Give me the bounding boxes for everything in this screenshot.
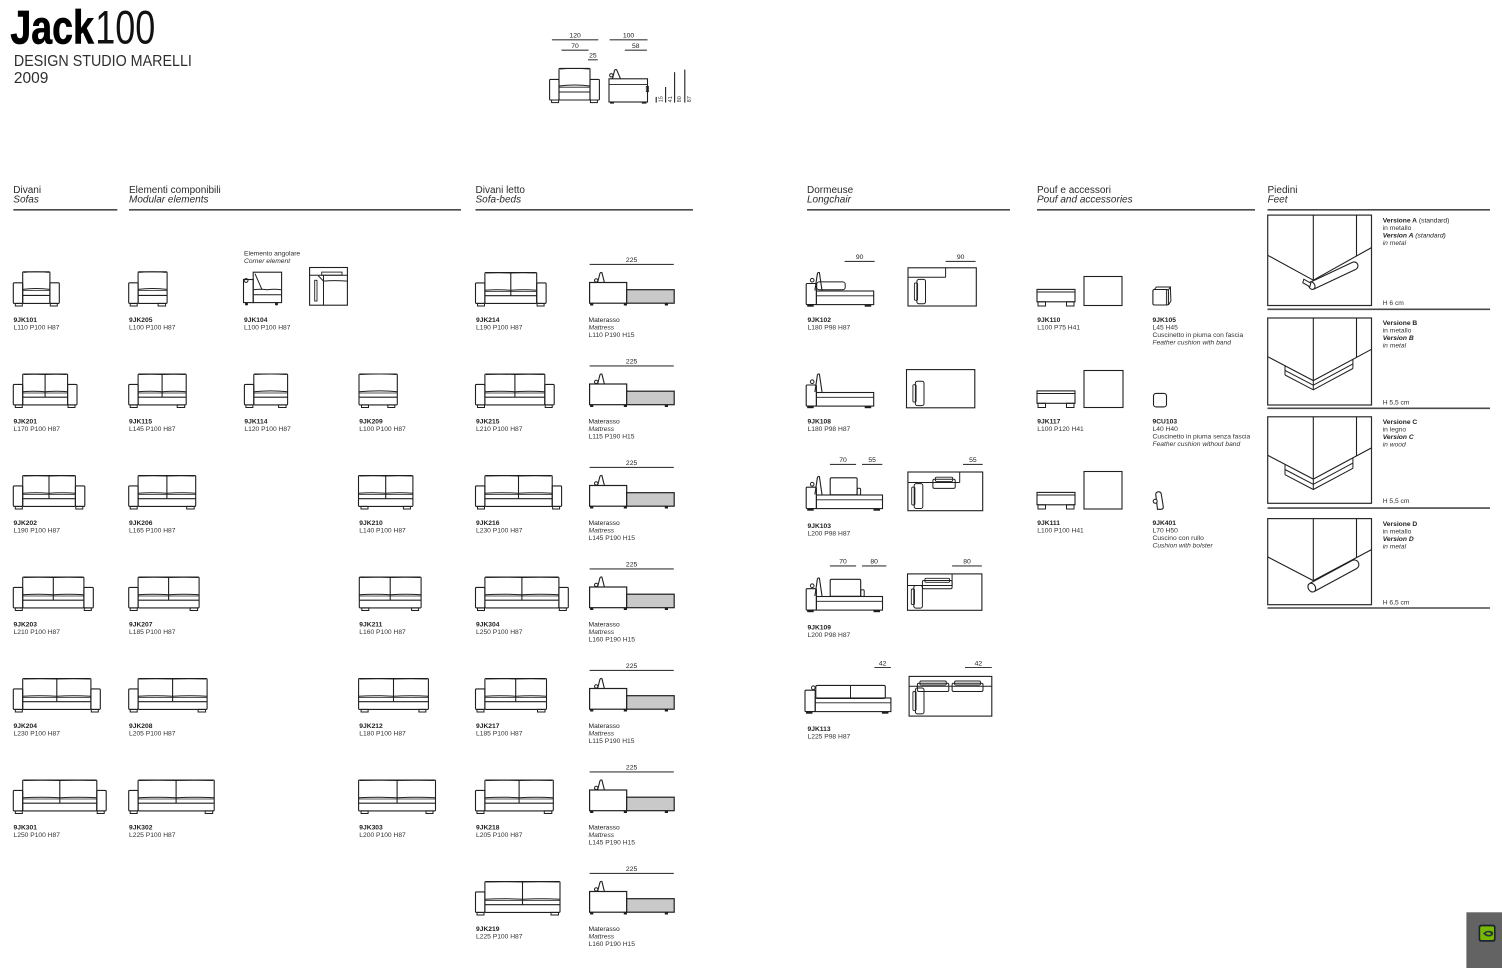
svg-text:Versione D: Versione D — [1383, 521, 1418, 528]
svg-text:9JK210: 9JK210 — [359, 520, 383, 527]
svg-text:Mattress: Mattress — [589, 629, 615, 636]
svg-text:in metal: in metal — [1383, 343, 1407, 350]
svg-text:42: 42 — [879, 660, 887, 667]
svg-text:L225 P100 H87: L225 P100 H87 — [476, 933, 523, 940]
svg-text:9JK103: 9JK103 — [808, 523, 832, 530]
svg-text:15: 15 — [659, 96, 665, 102]
svg-text:Versione B: Versione B — [1383, 320, 1418, 327]
svg-text:80: 80 — [677, 96, 683, 102]
svg-text:L160 P190 H15: L160 P190 H15 — [589, 636, 636, 643]
svg-text:80: 80 — [870, 559, 878, 566]
svg-text:70: 70 — [839, 457, 847, 464]
svg-text:L200 P98 H87: L200 P98 H87 — [808, 531, 851, 538]
svg-text:9JK211: 9JK211 — [359, 621, 382, 628]
svg-text:L205 P100 H87: L205 P100 H87 — [476, 832, 523, 839]
svg-text:Mattress: Mattress — [589, 730, 615, 737]
svg-text:L225 P100 H87: L225 P100 H87 — [129, 832, 176, 839]
svg-text:9CU103: 9CU103 — [1153, 418, 1178, 425]
svg-text:L140 P100 H87: L140 P100 H87 — [359, 527, 406, 534]
svg-text:L190 P100 H87: L190 P100 H87 — [476, 324, 523, 331]
svg-text:Feather cushion without band: Feather cushion without band — [1153, 441, 1241, 448]
svg-text:L180 P98 H87: L180 P98 H87 — [808, 324, 851, 331]
svg-text:L210 P100 H87: L210 P100 H87 — [14, 629, 61, 636]
svg-text:L230 P100 H87: L230 P100 H87 — [14, 730, 61, 737]
svg-text:9JK302: 9JK302 — [129, 824, 153, 831]
svg-text:Cuscino con rullo: Cuscino con rullo — [1153, 535, 1205, 542]
svg-text:H 5,5 cm: H 5,5 cm — [1383, 498, 1410, 505]
svg-text:L200 P98 H87: L200 P98 H87 — [808, 632, 851, 639]
svg-text:9JK214: 9JK214 — [476, 317, 500, 324]
svg-text:Materasso: Materasso — [589, 317, 621, 324]
svg-text:L100 P100 H87: L100 P100 H87 — [359, 426, 406, 433]
svg-text:L100 P75 H41: L100 P75 H41 — [1037, 324, 1080, 331]
svg-text:225: 225 — [626, 663, 638, 670]
svg-text:Mattress: Mattress — [589, 527, 615, 534]
svg-text:Mattress: Mattress — [589, 324, 615, 331]
svg-text:L225 P98 H87: L225 P98 H87 — [808, 734, 851, 741]
svg-text:L170 P100 H87: L170 P100 H87 — [14, 426, 61, 433]
svg-text:90: 90 — [957, 254, 965, 261]
svg-text:Cuscinetto in piuma con fascia: Cuscinetto in piuma con fascia — [1153, 332, 1244, 339]
svg-text:L180 P100 H87: L180 P100 H87 — [359, 730, 406, 737]
svg-text:L250 P100 H87: L250 P100 H87 — [476, 629, 523, 636]
svg-text:225: 225 — [626, 562, 638, 569]
svg-text:9JK114: 9JK114 — [244, 418, 267, 425]
svg-text:55: 55 — [868, 457, 876, 464]
svg-text:in metallo: in metallo — [1383, 328, 1412, 335]
svg-text:25: 25 — [589, 53, 597, 60]
svg-text:H 6,5 cm: H 6,5 cm — [1383, 599, 1410, 606]
svg-text:L100 P100 H41: L100 P100 H41 — [1037, 527, 1084, 534]
svg-text:L70 H50: L70 H50 — [1153, 527, 1179, 534]
svg-text:L100 P120 H41: L100 P120 H41 — [1037, 426, 1084, 433]
svg-text:9JK205: 9JK205 — [129, 317, 153, 324]
svg-text:H 5,5 cm: H 5,5 cm — [1383, 400, 1410, 407]
svg-text:H 6 cm: H 6 cm — [1383, 300, 1405, 307]
svg-text:Feet: Feet — [1268, 195, 1289, 206]
svg-text:L110 P190 H15: L110 P190 H15 — [589, 332, 635, 339]
svg-text:9JK115: 9JK115 — [129, 418, 152, 425]
svg-text:L180 P98 H87: L180 P98 H87 — [808, 426, 851, 433]
svg-text:9JK101: 9JK101 — [14, 317, 38, 324]
svg-text:9JK117: 9JK117 — [1037, 418, 1060, 425]
svg-text:9JK215: 9JK215 — [476, 418, 500, 425]
svg-text:Elemento angolare: Elemento angolare — [244, 250, 300, 257]
svg-text:L145 P190 H15: L145 P190 H15 — [589, 839, 636, 846]
svg-text:225: 225 — [626, 765, 638, 772]
svg-text:2009: 2009 — [14, 70, 48, 87]
svg-text:Mattress: Mattress — [589, 832, 615, 839]
svg-text:9JK212: 9JK212 — [359, 723, 383, 730]
svg-text:9JK203: 9JK203 — [14, 621, 38, 628]
svg-text:90: 90 — [856, 254, 864, 261]
svg-text:Jack: Jack — [10, 0, 94, 53]
svg-text:Materasso: Materasso — [589, 926, 621, 933]
svg-text:L120 P100 H87: L120 P100 H87 — [244, 426, 291, 433]
svg-text:225: 225 — [626, 460, 638, 467]
svg-text:9JK201: 9JK201 — [14, 418, 38, 425]
svg-text:9JK207: 9JK207 — [129, 621, 153, 628]
svg-text:9JK217: 9JK217 — [476, 723, 500, 730]
svg-text:L200 P100 H87: L200 P100 H87 — [359, 832, 406, 839]
svg-text:9JK109: 9JK109 — [808, 625, 832, 632]
svg-text:55: 55 — [969, 457, 977, 464]
svg-text:Modular elements: Modular elements — [129, 195, 208, 206]
svg-text:Materasso: Materasso — [589, 723, 621, 730]
svg-text:9JK219: 9JK219 — [476, 926, 500, 933]
svg-text:9JK301: 9JK301 — [14, 824, 38, 831]
svg-text:in metal: in metal — [1383, 543, 1407, 550]
svg-text:9JK111: 9JK111 — [1037, 520, 1060, 527]
svg-text:in metallo: in metallo — [1383, 225, 1412, 232]
svg-text:225: 225 — [626, 866, 638, 873]
svg-text:9JK104: 9JK104 — [244, 317, 268, 324]
svg-text:in metal: in metal — [1383, 240, 1407, 247]
svg-text:80: 80 — [963, 559, 971, 566]
svg-text:L110 P100 H87: L110 P100 H87 — [14, 324, 60, 331]
svg-text:Version B: Version B — [1383, 335, 1414, 342]
svg-text:L165 P100 H87: L165 P100 H87 — [129, 527, 176, 534]
svg-text:42: 42 — [975, 660, 983, 667]
svg-text:9JK110: 9JK110 — [1037, 317, 1060, 324]
svg-text:87: 87 — [687, 96, 693, 102]
svg-text:L205 P100 H87: L205 P100 H87 — [129, 730, 176, 737]
svg-text:L145 P190 H15: L145 P190 H15 — [589, 535, 636, 542]
svg-text:Feather cushion with band: Feather cushion with band — [1153, 339, 1232, 346]
svg-text:Sofa-beds: Sofa-beds — [476, 195, 522, 206]
svg-text:Version C: Version C — [1383, 434, 1414, 441]
svg-text:70: 70 — [839, 559, 847, 566]
svg-text:L115 P190 H15: L115 P190 H15 — [589, 433, 635, 440]
svg-text:L185 P100 H87: L185 P100 H87 — [476, 730, 523, 737]
svg-text:225: 225 — [626, 257, 638, 264]
svg-text:L40 H40: L40 H40 — [1153, 426, 1179, 433]
svg-text:L100 P100 H87: L100 P100 H87 — [244, 324, 291, 331]
svg-text:Mattress: Mattress — [589, 426, 615, 433]
svg-text:9JK202: 9JK202 — [14, 520, 38, 527]
svg-text:Versione C: Versione C — [1383, 419, 1418, 426]
svg-text:Longchair: Longchair — [807, 195, 852, 206]
svg-text:9JK216: 9JK216 — [476, 520, 500, 527]
svg-text:70: 70 — [571, 43, 579, 50]
svg-text:L185 P100 H87: L185 P100 H87 — [129, 629, 176, 636]
svg-text:9JK218: 9JK218 — [476, 824, 500, 831]
svg-text:DESIGN STUDIO MARELLI: DESIGN STUDIO MARELLI — [14, 53, 192, 70]
svg-text:9JK206: 9JK206 — [129, 520, 153, 527]
svg-text:Materasso: Materasso — [589, 520, 621, 527]
svg-text:41: 41 — [668, 96, 674, 102]
svg-text:L190 P100 H87: L190 P100 H87 — [14, 527, 61, 534]
svg-text:120: 120 — [569, 33, 581, 40]
svg-text:Materasso: Materasso — [589, 418, 621, 425]
svg-text:Cuscinetto in piuma senza fasc: Cuscinetto in piuma senza fascia — [1153, 433, 1251, 440]
svg-text:58: 58 — [632, 43, 640, 50]
svg-text:L250 P100 H87: L250 P100 H87 — [14, 832, 61, 839]
svg-text:Mattress: Mattress — [589, 933, 615, 940]
svg-text:9JK102: 9JK102 — [808, 317, 832, 324]
svg-text:100: 100 — [623, 33, 635, 40]
svg-text:Materasso: Materasso — [589, 824, 621, 831]
svg-text:Sofas: Sofas — [13, 195, 39, 206]
svg-text:L160 P190 H15: L160 P190 H15 — [589, 941, 636, 948]
svg-text:L145 P100 H87: L145 P100 H87 — [129, 426, 176, 433]
svg-text:9JK303: 9JK303 — [359, 824, 383, 831]
svg-text:Versione A (standard): Versione A (standard) — [1383, 217, 1450, 224]
svg-text:in metallo: in metallo — [1383, 528, 1412, 535]
svg-text:L160 P100 H87: L160 P100 H87 — [359, 629, 406, 636]
svg-text:Version D: Version D — [1383, 536, 1414, 543]
svg-text:9JK108: 9JK108 — [808, 418, 832, 425]
svg-text:9JK208: 9JK208 — [129, 723, 153, 730]
svg-text:9JK204: 9JK204 — [14, 723, 38, 730]
svg-text:L115 P190 H15: L115 P190 H15 — [589, 738, 635, 745]
svg-text:L230 P100 H87: L230 P100 H87 — [476, 527, 523, 534]
svg-text:9JK113: 9JK113 — [808, 726, 831, 733]
svg-text:9JK304: 9JK304 — [476, 621, 500, 628]
svg-text:100: 100 — [95, 0, 155, 53]
svg-text:Cushion with bolster: Cushion with bolster — [1153, 542, 1214, 549]
svg-text:9JK209: 9JK209 — [359, 418, 383, 425]
svg-text:in legno: in legno — [1383, 427, 1407, 434]
svg-text:Pouf and accessories: Pouf and accessories — [1037, 195, 1133, 206]
svg-text:Corner element: Corner element — [244, 258, 291, 265]
svg-text:in wood: in wood — [1383, 442, 1406, 449]
svg-text:225: 225 — [626, 359, 638, 366]
svg-text:9JK401: 9JK401 — [1153, 520, 1177, 527]
svg-text:L45 H45: L45 H45 — [1153, 324, 1179, 331]
svg-text:Version A (standard): Version A (standard) — [1383, 232, 1446, 239]
svg-text:L100 P100 H87: L100 P100 H87 — [129, 324, 176, 331]
svg-text:Materasso: Materasso — [589, 621, 621, 628]
svg-text:9JK105: 9JK105 — [1153, 317, 1177, 324]
svg-text:L210 P100 H87: L210 P100 H87 — [476, 426, 523, 433]
